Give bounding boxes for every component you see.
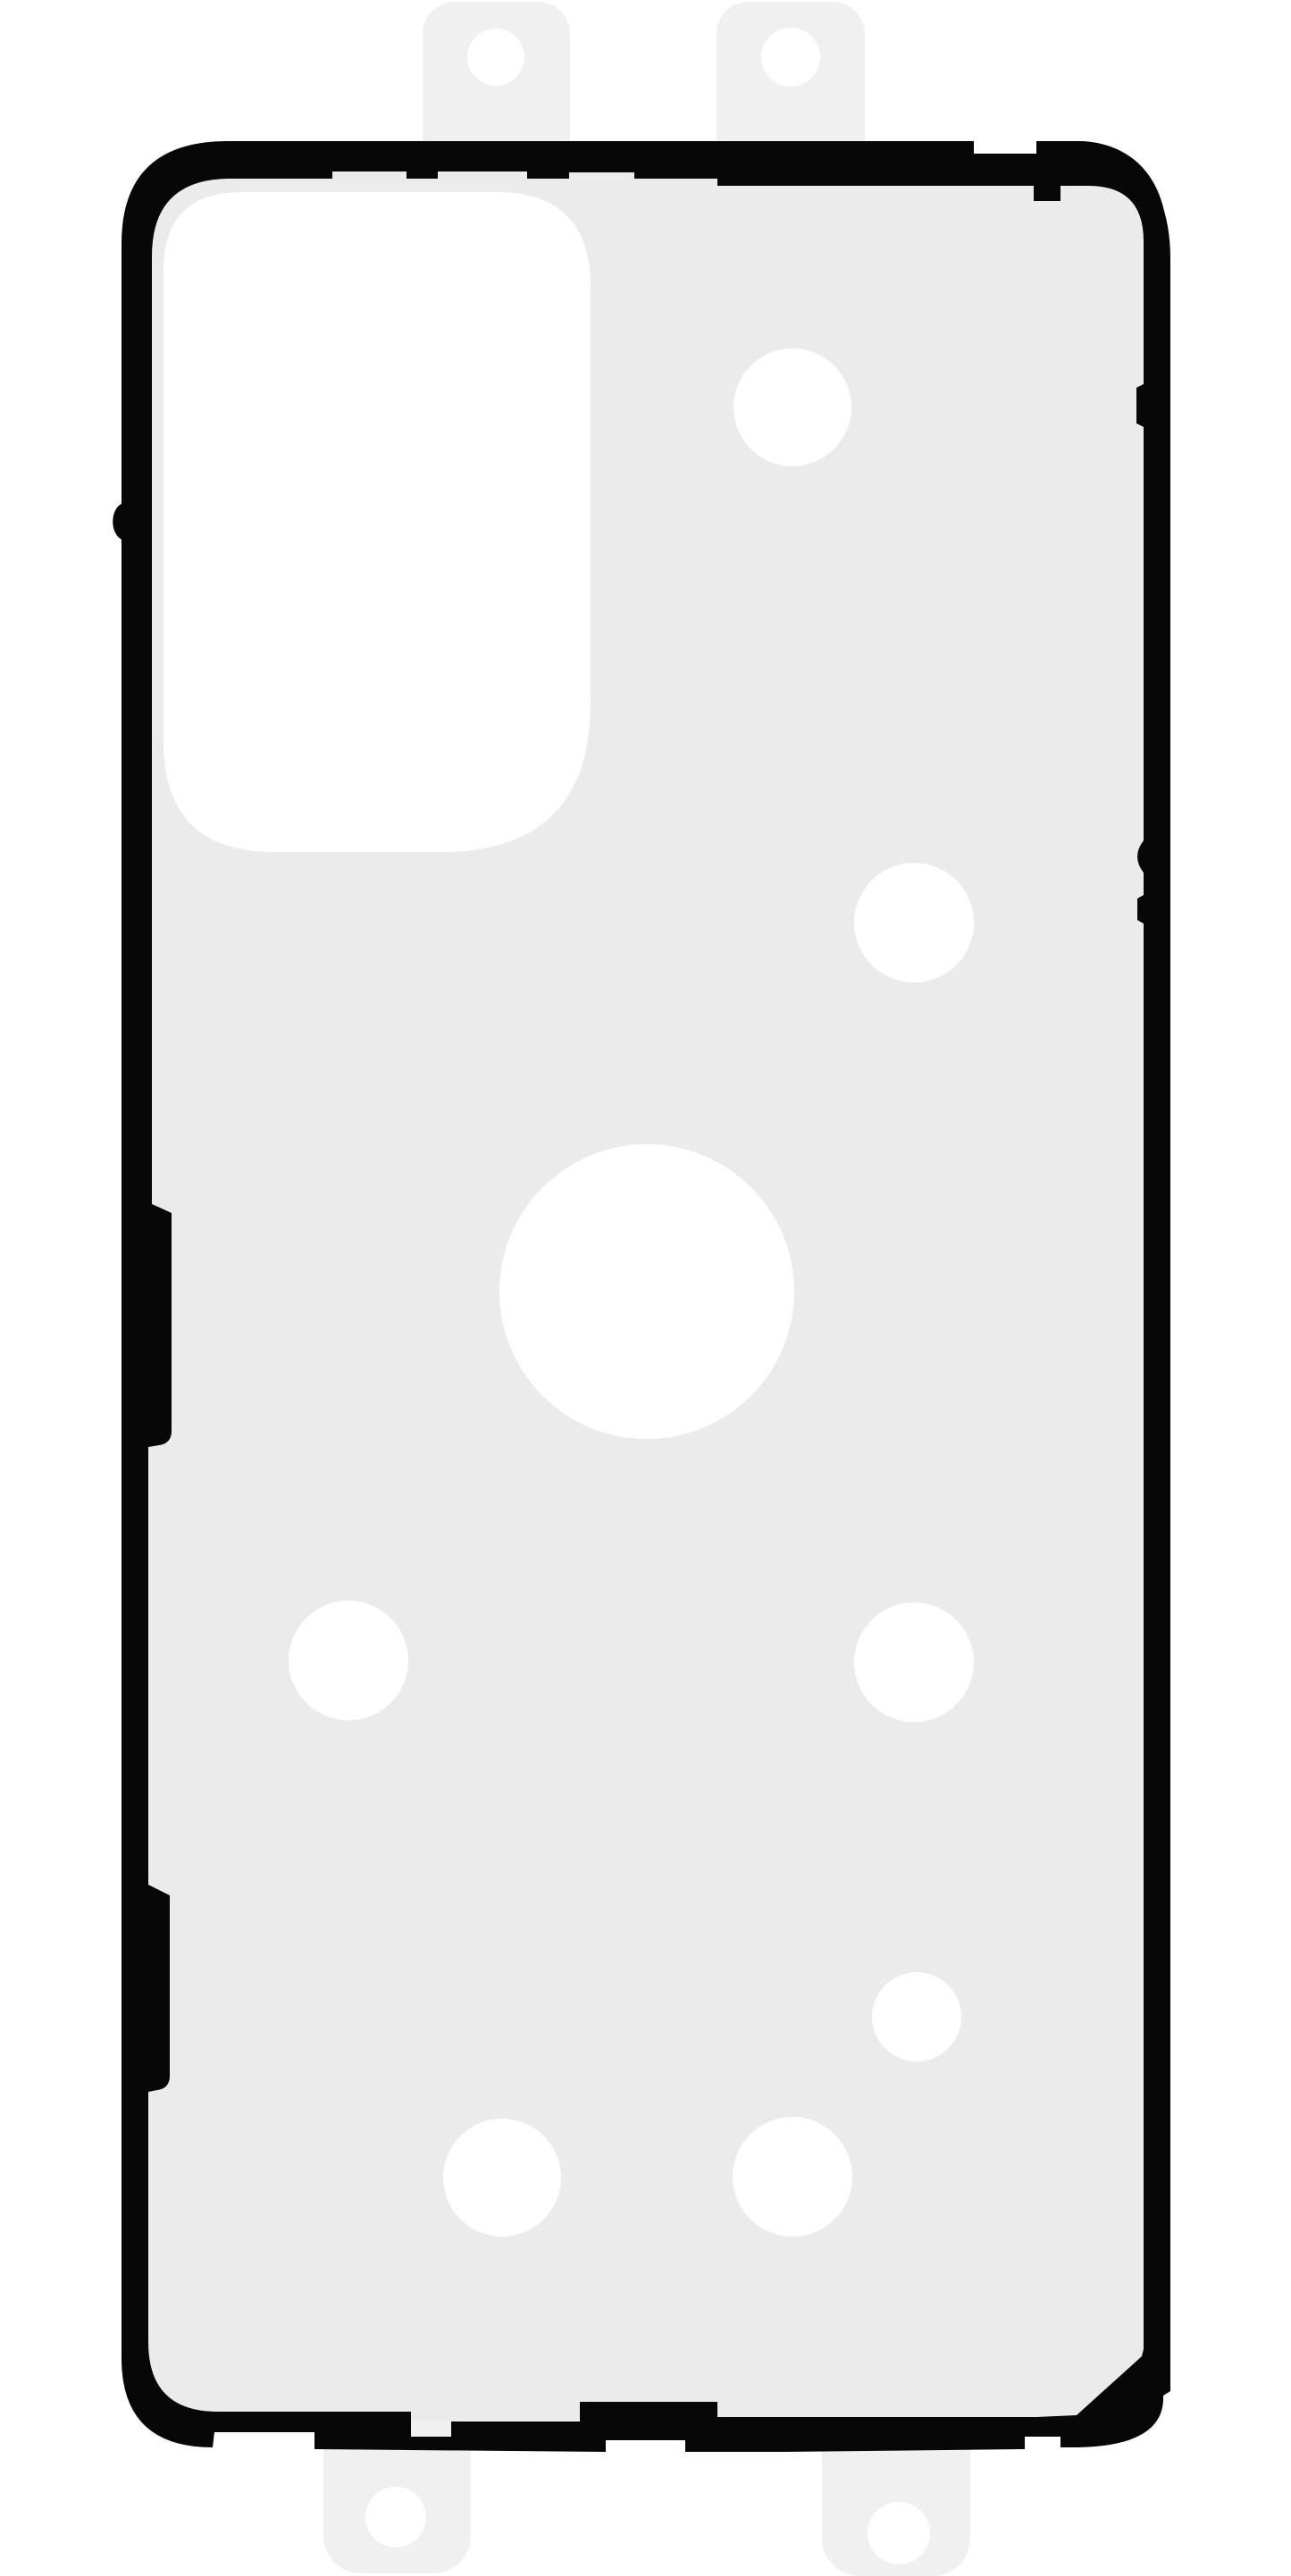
pull-tab-top-left-hole xyxy=(467,29,524,86)
cutout-hole-lower-right xyxy=(854,1602,974,1722)
cutout-hole-bottom-left xyxy=(443,2119,561,2237)
cutout-hole-center-large xyxy=(499,1144,794,1439)
pull-tab-bottom-left-hole xyxy=(365,2487,426,2547)
pull-tab-top-right-hole xyxy=(761,28,820,87)
pull-tab-bottom-right-hole xyxy=(868,2502,930,2564)
cutout-hole-mid-right xyxy=(854,863,974,983)
product-photo-canvas xyxy=(0,0,1291,2576)
cutout-hole-lower-left xyxy=(289,1601,408,1720)
adhesive-sticker-image xyxy=(0,0,1291,2576)
cutout-hole-bottom-right xyxy=(733,2117,852,2237)
cutout-hole-small xyxy=(872,1972,961,2062)
camera-module-cutout xyxy=(163,192,591,852)
cutout-hole-upper xyxy=(734,348,851,466)
